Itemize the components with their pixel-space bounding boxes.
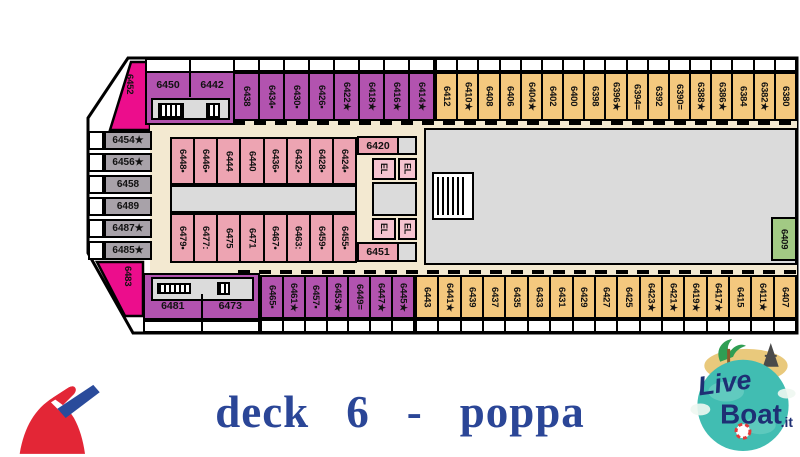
cabin-6483-label: 6483 <box>122 266 133 286</box>
cabin-6392: 6392 <box>647 58 670 121</box>
balcony-cell <box>572 319 596 333</box>
balcony-cell <box>549 319 573 333</box>
cabin-number: 6467• <box>270 226 281 249</box>
elevator-label: EL <box>379 163 389 174</box>
balcony-cell <box>456 58 479 72</box>
cabin-6453: 6453★ <box>326 275 350 333</box>
cabin-number: 6433 <box>533 287 544 307</box>
cabin-6456: 6456★ <box>88 153 154 172</box>
cabin-6419: 6419★ <box>683 275 707 333</box>
cabin-number: 6487★ <box>112 223 143 234</box>
cabin-6435: 6435 <box>504 275 528 333</box>
cabin-number: 6477: <box>200 226 211 249</box>
cabin-6439: 6439 <box>460 275 484 333</box>
balcony-cell <box>435 58 458 72</box>
balcony-cell <box>774 58 797 72</box>
cabin-6409: 6409 <box>771 217 797 261</box>
balcony-cell <box>626 58 649 72</box>
cabin-number: 6448• <box>177 149 188 172</box>
elevator-lobby <box>372 182 417 216</box>
cabin-6411: 6411★ <box>750 275 774 333</box>
cabin-6434: 6434▪ <box>258 58 285 121</box>
balcony-cell <box>88 153 104 172</box>
cabin-6407: 6407 <box>773 275 797 333</box>
cabin-6423: 6423★ <box>639 275 663 333</box>
cabin-number: 6388★ <box>695 82 706 111</box>
balcony-cell <box>233 58 260 72</box>
balcony-cell <box>661 319 685 333</box>
balcony-cell <box>283 58 310 72</box>
cabin-6485: 6485★ <box>88 241 154 260</box>
cabin-number: 6485★ <box>112 245 143 256</box>
mid-lower-cabin-row: 6479•6477:647564716467•6463:6459•6455• <box>170 213 357 263</box>
balcony-cell <box>460 319 484 333</box>
balcony-cell <box>706 319 730 333</box>
cabin-number: 6446• <box>200 149 211 172</box>
balcony-cell <box>333 58 360 72</box>
balcony-cell <box>201 320 261 333</box>
cabin-number: 6444 <box>223 151 234 171</box>
cabin-6415: 6415 <box>728 275 752 333</box>
cabin-6412: 6412 <box>435 58 458 121</box>
cabin-6431: 6431 <box>549 275 573 333</box>
balcony-cell <box>88 131 104 150</box>
cabin-number: 6411★ <box>757 283 768 311</box>
cabin-number: 6435 <box>511 287 522 307</box>
cabin-6384: 6384 <box>731 58 754 121</box>
cabin-number: 6438 <box>241 86 252 106</box>
cabin-number: 6425 <box>623 287 634 307</box>
cabin-6433: 6433 <box>527 275 551 333</box>
cabin-6477: 6477: <box>193 213 218 263</box>
aft-cabin-block-top: 6450 6442 <box>145 71 235 125</box>
aft-cabin-block-bottom: 6481 6473 <box>143 273 260 320</box>
balcony-cell <box>347 319 371 333</box>
balcony-cell <box>88 197 104 216</box>
cabin-number: 6416★ <box>391 82 402 111</box>
cabin-number: 6439 <box>466 287 477 307</box>
cabin-6444: 6444 <box>216 137 241 185</box>
cabin-6424: 6424• <box>332 137 357 185</box>
cabin-6487: 6487★ <box>88 219 154 238</box>
cabin-6388: 6388★ <box>689 58 712 121</box>
cabin-6437: 6437 <box>482 275 506 333</box>
cabin-number: 6412 <box>441 86 452 106</box>
cabin-6455: 6455• <box>332 213 357 263</box>
cabin-number: 6463: <box>293 226 304 249</box>
bottom-cabin-row-purple: 6469★6465▪6461★6457▪6453★6449=6447★6445★ <box>238 275 415 333</box>
cabin-6420-label: 6420 <box>366 140 389 152</box>
cabin-number: 6380 <box>780 86 791 106</box>
deck-plan-page: 6452 6483 64386434▪6430▪6426▪6422★6418★6… <box>0 0 800 457</box>
balcony-cell <box>88 219 104 238</box>
cabin-number: 6428• <box>316 149 327 172</box>
left-cabin-column: 6454★6456★645864896487★6485★ <box>88 131 154 263</box>
balcony-cell <box>710 58 733 72</box>
cabin-6396: 6396★ <box>604 58 627 121</box>
balcony-cell <box>88 175 104 194</box>
cabin-6410: 6410★ <box>456 58 479 121</box>
cabin-6380: 6380 <box>774 58 797 121</box>
balcony-cell <box>408 58 435 72</box>
cabin-6458: 6458 <box>88 175 154 194</box>
elevator-label: EL <box>403 223 413 234</box>
cabin-6445: 6445★ <box>391 275 415 333</box>
cabin-number: 6414★ <box>416 82 427 111</box>
elevator-4: EL <box>398 218 417 240</box>
corridor-wall-bottom <box>238 270 797 274</box>
open-area-right <box>424 128 797 265</box>
cabin-number: 6396★ <box>610 82 621 111</box>
cabin-number: 6461★ <box>288 283 299 312</box>
cabin-number: 6392 <box>653 86 664 106</box>
balcony-cell <box>326 319 350 333</box>
cabin-6416: 6416★ <box>383 58 410 121</box>
cabin-6450: 6450 <box>147 73 189 97</box>
cabin-number: 6429 <box>578 287 589 307</box>
balcony-cell <box>541 58 564 72</box>
cabin-number: 6456★ <box>112 157 143 168</box>
balcony-cell <box>143 320 203 333</box>
cabin-number: 6436• <box>270 149 281 172</box>
balcony-cell <box>482 319 506 333</box>
balcony-cell <box>728 319 752 333</box>
utility-cell <box>397 242 417 262</box>
balcony-cell <box>604 58 627 72</box>
cabin-number: 6427 <box>601 287 612 307</box>
cabin-number: 6415 <box>735 287 746 307</box>
balcony-cell <box>415 319 439 333</box>
balcony-cell <box>583 58 606 72</box>
cabin-6406: 6406 <box>499 58 522 121</box>
balcony-cell <box>520 58 543 72</box>
cabin-6443: 6443 <box>415 275 439 333</box>
balcony-cell <box>282 319 306 333</box>
cabin-number: 6457▪ <box>310 285 321 309</box>
cabin-6440: 6440 <box>239 137 264 185</box>
cabin-number: 6402 <box>547 86 558 106</box>
cabin-6414: 6414★ <box>408 58 435 121</box>
cabin-6429: 6429 <box>572 275 596 333</box>
balcony-cell <box>773 319 797 333</box>
balcony-cell <box>750 319 774 333</box>
cabin-6427: 6427 <box>594 275 618 333</box>
cabin-number: 6382★ <box>759 82 770 111</box>
balcony-cell <box>369 319 393 333</box>
elevator-2: EL <box>398 158 417 180</box>
aft-bottom-balconies <box>143 320 260 333</box>
cabin-6382: 6382★ <box>753 58 776 121</box>
cabin-6442: 6442 <box>189 73 233 97</box>
cabin-number: 6410★ <box>462 82 473 111</box>
cabin-6408: 6408 <box>477 58 500 121</box>
balcony-cell <box>683 319 707 333</box>
cabin-number: 6418★ <box>366 82 377 111</box>
stairs-icon <box>206 103 220 118</box>
cabin-6483-shape <box>97 262 143 316</box>
balcony-cell <box>639 319 663 333</box>
mid-upper-cabin-row: 6448•6446•644464406436•6432•6428•6424• <box>170 137 357 185</box>
elevator-label: EL <box>403 163 413 174</box>
cabin-6449: 6449= <box>347 275 371 333</box>
liveboat-it-text: .it <box>781 414 794 430</box>
cabin-number: 6437 <box>489 287 500 307</box>
balcony-cell <box>562 58 585 72</box>
cabin-number: 6430▪ <box>291 85 302 109</box>
cabin-number: 6384 <box>737 86 748 106</box>
stairs-icon <box>437 177 464 215</box>
cabin-6432: 6432• <box>286 137 311 185</box>
open-area-center <box>170 185 357 213</box>
cabin-6420: 6420 <box>357 136 399 155</box>
cabin-6489: 6489 <box>88 197 154 216</box>
balcony-cell <box>616 319 640 333</box>
elevator-1: EL <box>372 158 396 180</box>
cabin-6479: 6479• <box>170 213 195 263</box>
cabin-number: 6441★ <box>444 283 455 312</box>
cabin-6473: 6473 <box>201 294 259 318</box>
cabin-6426: 6426▪ <box>308 58 335 121</box>
balcony-cell <box>647 58 670 72</box>
balcony-cell <box>668 58 691 72</box>
cabin-number: 6407 <box>779 287 790 307</box>
cabin-6448: 6448• <box>170 137 195 185</box>
cabin-6425: 6425 <box>616 275 640 333</box>
balcony-cell <box>594 319 618 333</box>
balcony-cell <box>731 58 754 72</box>
cabin-6452-label: 6452 <box>124 74 135 94</box>
cabin-number: 6449= <box>354 284 365 310</box>
cabin-number: 6422★ <box>341 82 352 111</box>
bottom-cabin-row-orange: 64436441★6439643764356433643164296427642… <box>415 275 797 333</box>
cabin-6475: 6475 <box>216 213 241 263</box>
cabin-6436: 6436• <box>263 137 288 185</box>
balcony-cell <box>383 58 410 72</box>
cabin-number: 6386★ <box>716 82 727 111</box>
page-title: deck 6 - poppa <box>0 386 800 438</box>
cabin-6447: 6447★ <box>369 275 393 333</box>
cabin-6418: 6418★ <box>358 58 385 121</box>
cabin-6461: 6461★ <box>282 275 306 333</box>
cabin-number: 6458 <box>117 179 139 190</box>
cabin-number: 6406 <box>505 86 516 106</box>
cabin-6400: 6400 <box>562 58 585 121</box>
cabin-6451: 6451 <box>357 242 399 262</box>
cabin-6402: 6402 <box>541 58 564 121</box>
cabin-number: 6419★ <box>690 283 701 312</box>
cabin-number: 6489 <box>117 201 139 212</box>
cabin-6422: 6422★ <box>333 58 360 121</box>
cabin-number: 6479• <box>177 226 188 249</box>
corridor-wall-top <box>233 121 797 125</box>
balcony-cell <box>308 58 335 72</box>
cabin-number: 6423★ <box>645 283 656 312</box>
balcony-cell <box>358 58 385 72</box>
balcony-cell <box>499 58 522 72</box>
cabin-number: 6421★ <box>668 283 679 312</box>
cabin-number: 6443 <box>422 287 433 307</box>
cabin-6454: 6454★ <box>88 131 154 150</box>
cabin-6398: 6398 <box>583 58 606 121</box>
balcony-cell <box>753 58 776 72</box>
stair-landing-top <box>151 98 230 120</box>
cabin-number: 6408 <box>483 86 494 106</box>
stairs-icon <box>157 283 191 294</box>
cabin-number: 6455• <box>339 226 350 249</box>
utility-cell <box>397 136 417 155</box>
cabin-number: 6432• <box>293 149 304 172</box>
cabin-6428: 6428• <box>309 137 334 185</box>
balcony-cell <box>304 319 328 333</box>
cabin-6430: 6430▪ <box>283 58 310 121</box>
cabin-number: 6475 <box>223 228 234 248</box>
cabin-6404: 6404★ <box>520 58 543 121</box>
cabin-number: 6445★ <box>398 283 409 312</box>
cabin-number: 6390= <box>674 84 685 110</box>
cabin-6441: 6441★ <box>437 275 461 333</box>
cabin-number: 6394= <box>632 84 643 110</box>
cabin-6463: 6463: <box>286 213 311 263</box>
balcony-cell <box>391 319 415 333</box>
elevator-label: EL <box>379 223 389 234</box>
cabin-number: 6447★ <box>376 283 387 312</box>
stairs-icon <box>158 103 184 118</box>
cabin-number: 6471 <box>246 228 257 248</box>
cabin-number: 6434▪ <box>266 85 277 109</box>
balcony-cell <box>689 58 712 72</box>
cabin-number: 6440 <box>246 151 257 171</box>
cabin-6421: 6421★ <box>661 275 685 333</box>
cabin-number: 6417★ <box>712 283 723 312</box>
cabin-6481: 6481 <box>145 294 201 318</box>
cabin-6471: 6471 <box>239 213 264 263</box>
cabin-6386: 6386★ <box>710 58 733 121</box>
cabin-6446: 6446• <box>193 137 218 185</box>
cabin-number: 6459• <box>316 226 327 249</box>
balcony-cell <box>88 241 104 260</box>
balcony-cell <box>504 319 528 333</box>
balcony-cell <box>437 319 461 333</box>
liveboat-boat-text: Boat <box>720 398 782 429</box>
cabin-6457: 6457▪ <box>304 275 328 333</box>
cabin-number: 6465▪ <box>266 285 277 309</box>
cabin-6409-label: 6409 <box>779 229 790 249</box>
cabin-6459: 6459• <box>309 213 334 263</box>
cabin-number: 6426▪ <box>316 85 327 109</box>
cabin-number: 6424• <box>339 149 350 172</box>
balcony-cell <box>527 319 551 333</box>
balcony-cell <box>260 319 284 333</box>
cabin-6467: 6467• <box>263 213 288 263</box>
top-cabin-row-purple: 64386434▪6430▪6426▪6422★6418★6416★6414★ <box>233 58 435 121</box>
elevator-3: EL <box>372 218 396 240</box>
cabin-number: 6454★ <box>112 135 143 146</box>
balcony-cell <box>477 58 500 72</box>
cabin-6465: 6465▪ <box>260 275 284 333</box>
cabin-number: 6453★ <box>332 283 343 312</box>
cabin-number: 6404★ <box>526 82 537 111</box>
cabin-6451-label: 6451 <box>366 246 389 258</box>
cabin-number: 6400 <box>568 86 579 106</box>
top-cabin-row-orange: 64126410★640864066404★6402640063986396★6… <box>435 58 797 121</box>
cabin-number: 6398 <box>589 86 600 106</box>
cabin-6417: 6417★ <box>706 275 730 333</box>
cabin-number: 6431 <box>556 287 567 307</box>
balcony-cell <box>258 58 285 72</box>
cabin-6390: 6390= <box>668 58 691 121</box>
carnival-logo <box>16 380 108 456</box>
cabin-6438: 6438 <box>233 58 260 121</box>
stairwell <box>432 172 474 220</box>
cabin-6394: 6394= <box>626 58 649 121</box>
